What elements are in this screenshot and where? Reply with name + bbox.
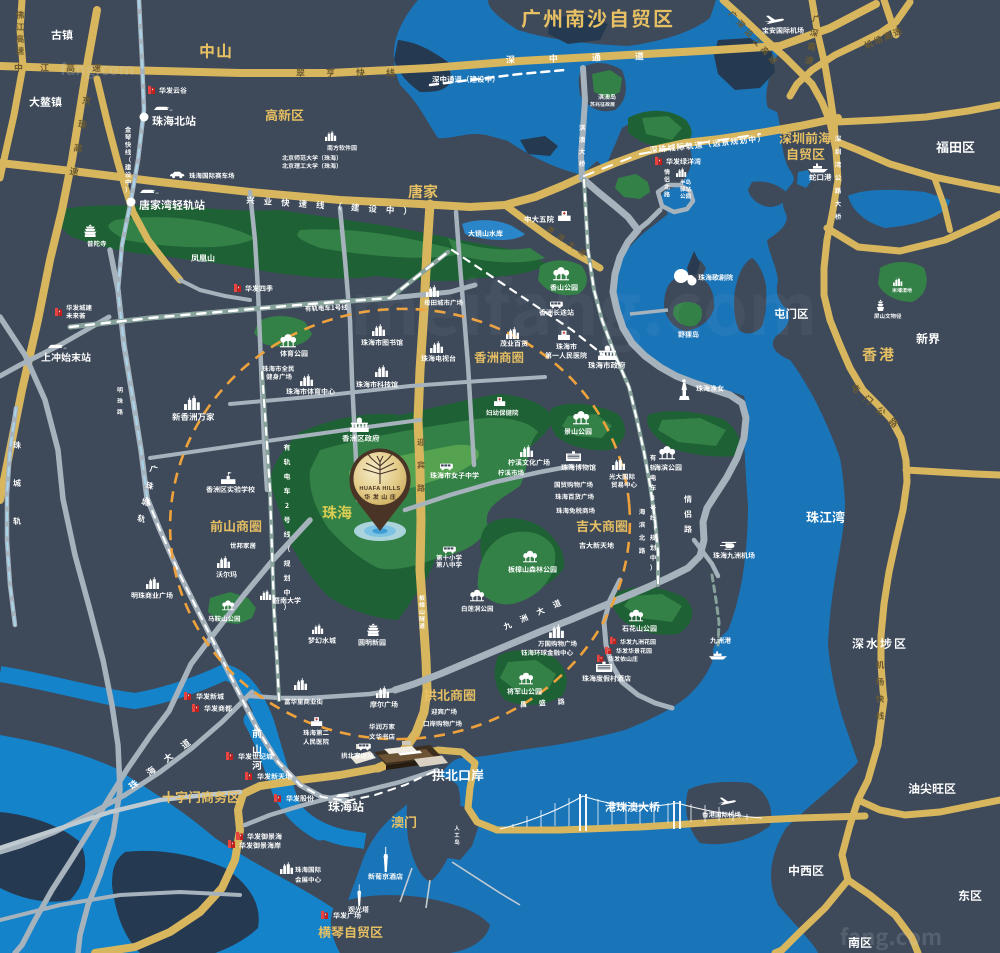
svg-text:HUAFA HILLS: HUAFA HILLS (359, 486, 400, 492)
